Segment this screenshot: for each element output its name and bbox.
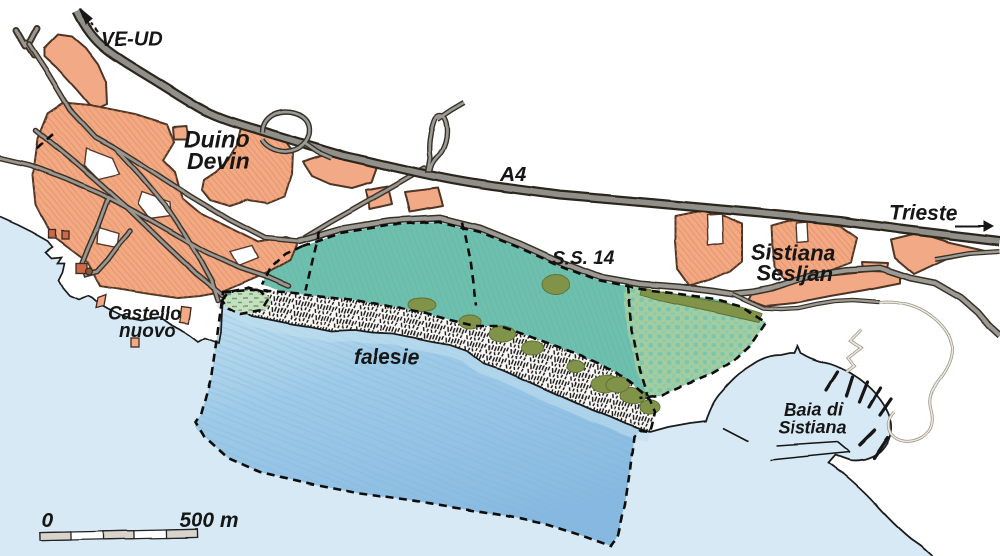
svg-text:Devin: Devin [187,148,250,174]
svg-text:500 m: 500 m [179,509,239,532]
svg-text:0: 0 [42,509,54,532]
svg-text:Sesljan: Sesljan [756,261,833,286]
svg-text:falesie: falesie [354,346,420,369]
svg-text:Trieste: Trieste [889,202,958,225]
svg-text:Baia di: Baia di [784,400,844,420]
svg-text:nuovo: nuovo [119,321,176,342]
svg-text:VE-UD: VE-UD [101,29,163,51]
svg-text:S.S. 14: S.S. 14 [552,248,615,269]
svg-text:Sistiana: Sistiana [778,418,847,438]
svg-text:A4: A4 [499,163,527,186]
